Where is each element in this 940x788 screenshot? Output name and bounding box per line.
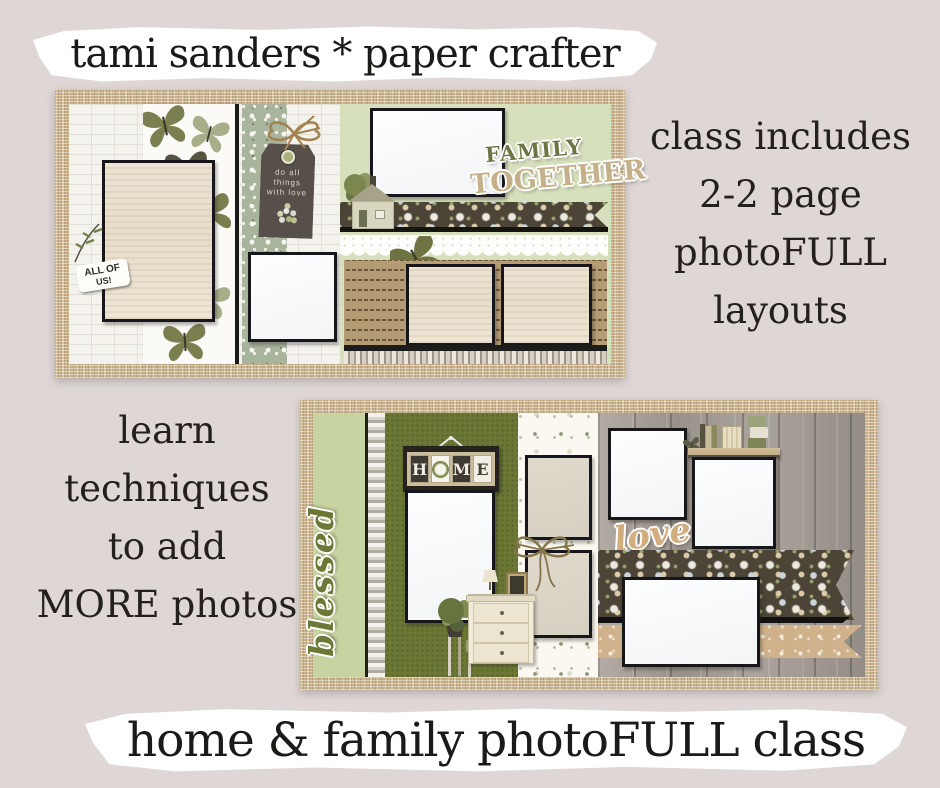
blessed-sticker: blessed — [302, 488, 362, 674]
mug-stack-icon — [748, 416, 766, 427]
learn-line1: learn — [22, 402, 312, 460]
lamp-stem — [489, 582, 491, 590]
leaf-sprig-icon — [73, 222, 107, 266]
header-banner: tami sanders * paper crafter — [33, 26, 657, 82]
photo-placeholder — [622, 577, 760, 667]
lace-border-strip — [340, 235, 608, 252]
learn-line3: to add — [22, 518, 312, 576]
wreath-icon — [431, 455, 450, 483]
home-letter-h: H — [410, 455, 429, 483]
stand-legs — [448, 634, 451, 676]
house-roof — [349, 184, 395, 201]
photo-placeholder — [692, 457, 776, 549]
black-divider-strip — [235, 104, 239, 364]
striped-paper-strip — [344, 351, 607, 364]
sign-frame: H M E — [407, 452, 495, 486]
photo-placeholder — [248, 252, 337, 342]
class-includes-line1: class includes — [628, 108, 933, 166]
house-window — [375, 210, 385, 219]
striped-paper-strip — [368, 413, 385, 677]
lamp-shade — [482, 570, 498, 582]
books-icon — [700, 424, 705, 448]
flyer: tami sanders * paper crafter — [0, 0, 940, 788]
class-includes-line3: photoFULL — [628, 224, 933, 282]
tag-text: do all things with love — [260, 167, 315, 199]
learn-techniques-text: learn techniques to add MORE photos — [22, 402, 312, 634]
home-letter-m: M — [452, 455, 471, 483]
plant-pot — [446, 624, 464, 637]
scrapbook-page-green: FAMILY TOGETHER — [340, 104, 611, 364]
plant-foliage — [438, 598, 464, 624]
house-body — [352, 201, 394, 229]
twine-bow-icon — [255, 112, 333, 154]
class-title: home & family photoFULL class — [127, 713, 865, 768]
photo-placeholder — [406, 264, 495, 346]
scrapbook-page-brick: ALL OF US! do all things with love — [69, 104, 340, 364]
footer-banner: home & family photoFULL class — [85, 708, 907, 772]
scrapbook-page-wood: love — [598, 413, 865, 677]
frame-art — [510, 576, 524, 594]
class-includes-line4: layouts — [628, 282, 933, 340]
house-door — [359, 210, 367, 227]
dresser-sticker — [468, 570, 534, 670]
layout-photo-family-together: ALL OF US! do all things with love — [55, 90, 625, 378]
photo-placeholder — [501, 264, 592, 346]
learn-line4: MORE photos — [22, 576, 312, 634]
learn-line2: techniques — [22, 460, 312, 518]
dresser-body — [468, 594, 534, 664]
basket-icon — [722, 426, 742, 450]
class-includes-line2: 2-2 page — [628, 166, 933, 224]
shelf-sticker — [688, 418, 780, 458]
photo-placeholder — [608, 428, 687, 520]
home-letter-e: E — [473, 455, 492, 483]
site-title: tami sanders * paper crafter — [70, 31, 619, 77]
layout-photo-home-love: blessed H M E — [300, 400, 878, 690]
class-includes-text: class includes 2-2 page photoFULL layout… — [628, 108, 933, 340]
home-sign-sticker: H M E — [403, 436, 499, 492]
house-sticker — [346, 176, 398, 228]
gift-tag-sticker: do all things with love — [258, 143, 315, 239]
tag-line3: with love — [260, 187, 314, 199]
photo-placeholder — [102, 160, 215, 322]
flower-bouquet-icon — [283, 208, 289, 214]
